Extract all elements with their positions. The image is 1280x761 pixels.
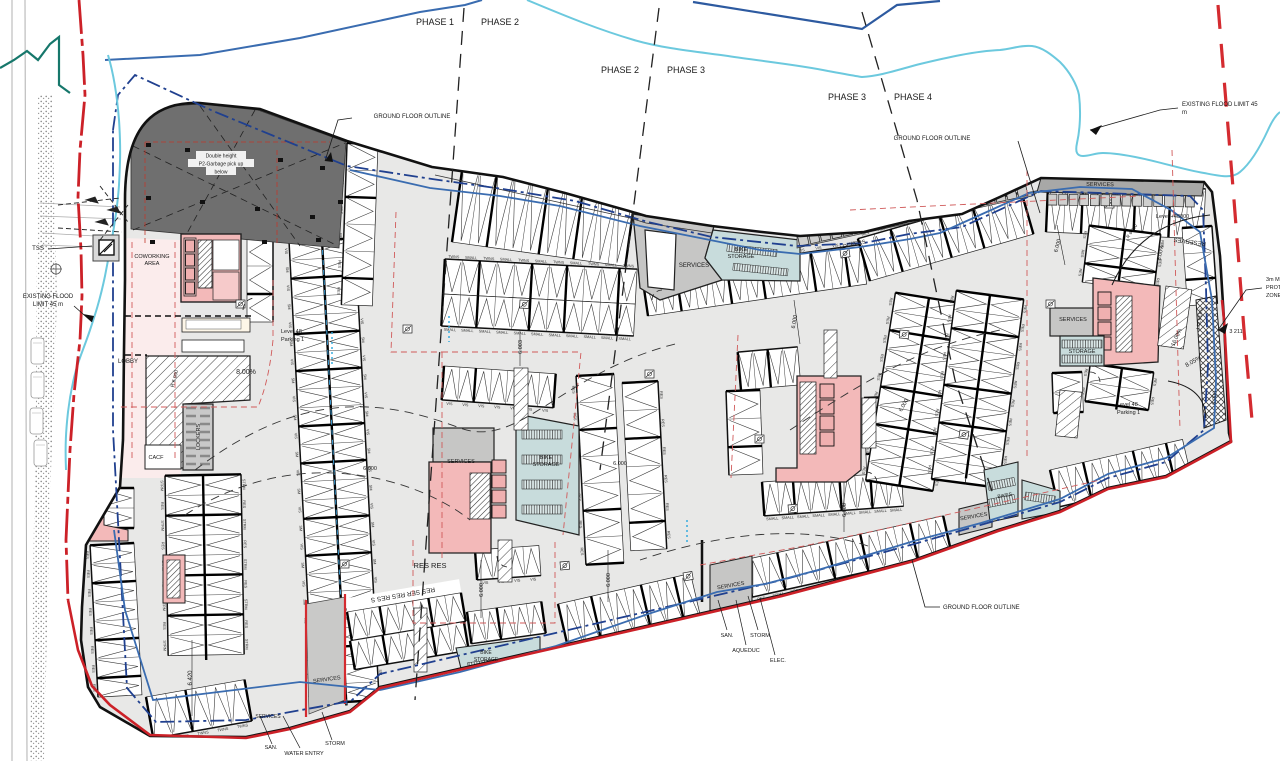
svg-text:SERVICES: SERVICES (1059, 317, 1087, 323)
svg-text:RES: RES (91, 665, 95, 673)
svg-text:SM: SM (372, 559, 376, 565)
svg-text:LIMIT 45 m: LIMIT 45 m (33, 302, 63, 308)
svg-text:SM: SM (285, 267, 289, 273)
svg-text:ZONE: ZONE (1266, 293, 1280, 299)
svg-text:STORM: STORM (325, 741, 345, 747)
svg-text:VIS: VIS (301, 580, 305, 587)
svg-text:COWORKING: COWORKING (134, 254, 169, 260)
svg-text:RES: RES (663, 475, 667, 483)
svg-text:VIS: VIS (530, 577, 537, 581)
svg-text:RES: RES (660, 419, 664, 427)
svg-text:SM: SM (365, 411, 369, 417)
svg-text:SM: SM (361, 337, 365, 343)
svg-text:VIS: VIS (494, 405, 501, 409)
svg-text:VIS: VIS (462, 403, 469, 407)
svg-text:GROUND FLOOR OUTLINE: GROUND FLOOR OUTLINE (943, 605, 1020, 611)
svg-text:Level 48: Level 48 (281, 329, 302, 335)
svg-text:STRM: STRM (244, 639, 248, 650)
svg-text:BIKE: BIKE (735, 247, 748, 253)
svg-text:SM: SM (370, 522, 374, 528)
svg-text:VIS: VIS (290, 359, 294, 366)
svg-text:VIS: VIS (362, 355, 366, 362)
svg-text:SM: SM (287, 304, 291, 310)
svg-text:6.000: 6.000 (363, 466, 377, 472)
svg-text:BIKE: BIKE (540, 455, 553, 461)
svg-text:P2-Garbage pick up: P2-Garbage pick up (199, 162, 244, 168)
svg-text:STRM: STRM (160, 480, 164, 491)
svg-text:LOBBY: LOBBY (118, 359, 138, 365)
svg-text:RES: RES (243, 540, 247, 548)
svg-text:VIS: VIS (297, 507, 301, 514)
svg-text:6.000: 6.000 (479, 583, 485, 597)
svg-text:6.000: 6.000 (1211, 391, 1218, 405)
svg-text:TWNS: TWNS (448, 255, 460, 260)
svg-text:RES: RES (162, 622, 166, 630)
svg-text:SMALL: SMALL (601, 336, 614, 341)
svg-text:SAN.: SAN. (721, 633, 734, 639)
svg-text:6.000: 6.000 (613, 461, 627, 467)
svg-text:VIS: VIS (360, 318, 364, 325)
svg-text:RES: RES (87, 589, 91, 597)
svg-text:STRM: STRM (244, 599, 248, 610)
svg-text:STORAGE: STORAGE (533, 462, 560, 468)
svg-text:WATER ENTRY: WATER ENTRY (284, 751, 324, 757)
svg-text:SM: SM (293, 415, 297, 421)
svg-text:SMALL: SMALL (570, 261, 583, 266)
svg-text:VIS: VIS (446, 402, 453, 406)
svg-text:VIS: VIS (478, 404, 485, 408)
svg-text:SMALL: SMALL (605, 263, 618, 268)
svg-text:SMALL: SMALL (496, 330, 509, 335)
svg-text:VIS: VIS (294, 433, 298, 440)
svg-text:TWNS: TWNS (518, 258, 530, 263)
svg-text:STRM: STRM (162, 640, 166, 651)
svg-text:RES: RES (89, 627, 93, 635)
svg-text:below: below (214, 170, 227, 176)
svg-text:VIS: VIS (288, 322, 292, 329)
svg-text:SMALL: SMALL (500, 257, 513, 262)
svg-text:PROT: PROT (1266, 285, 1280, 291)
svg-text:RES: RES (86, 570, 90, 578)
svg-text:SERVICES: SERVICES (255, 714, 281, 720)
svg-text:SMALL: SMALL (548, 333, 561, 338)
svg-text:VIS: VIS (292, 396, 296, 403)
svg-text:SMALL: SMALL (566, 334, 579, 339)
svg-text:LOCKERS: LOCKERS (196, 424, 202, 451)
svg-text:TWNS: TWNS (553, 260, 565, 265)
svg-text:RES: RES (665, 503, 669, 511)
svg-text:PHASE 1: PHASE 1 (416, 17, 454, 27)
svg-text:VIS: VIS (373, 577, 377, 584)
svg-text:STRM: STRM (243, 559, 247, 570)
svg-text:SMALL: SMALL (465, 256, 478, 261)
svg-text:TWNS: TWNS (483, 257, 495, 262)
svg-text:SM: SM (300, 562, 304, 568)
svg-text:SMALL: SMALL (479, 329, 492, 334)
svg-text:3m M: 3m M (1266, 277, 1280, 283)
svg-text:SMALL: SMALL (618, 337, 631, 342)
svg-text:SMALL: SMALL (531, 332, 544, 337)
svg-text:SMALL: SMALL (583, 335, 596, 340)
svg-text:TWNS: TWNS (588, 262, 600, 267)
svg-text:STORAGE: STORAGE (728, 254, 755, 260)
svg-text:6.000: 6.000 (842, 503, 848, 517)
svg-text:RES: RES (580, 547, 584, 555)
svg-text:RES: RES (160, 502, 164, 510)
svg-text:VIS: VIS (369, 503, 373, 510)
svg-text:m: m (1182, 110, 1187, 116)
svg-text:VIS: VIS (364, 392, 368, 399)
svg-text:Level +48000: Level +48000 (1156, 214, 1189, 220)
svg-text:VIS: VIS (514, 578, 521, 582)
svg-text:PHASE 2: PHASE 2 (481, 17, 519, 27)
svg-text:VIS: VIS (295, 470, 299, 477)
svg-text:RES: RES (666, 531, 670, 539)
svg-text:EXISTING FLOOD LIMIT 45: EXISTING FLOOD LIMIT 45 (1182, 102, 1258, 108)
svg-text:STORAGE: STORAGE (1069, 349, 1096, 355)
svg-text:PHASE 3: PHASE 3 (828, 92, 866, 102)
svg-text:3 211: 3 211 (1229, 329, 1242, 335)
svg-text:RES: RES (336, 287, 340, 295)
svg-text:RES: RES (337, 260, 341, 268)
svg-text:RES: RES (659, 391, 663, 399)
svg-text:AQUEDUC: AQUEDUC (732, 648, 760, 654)
svg-text:VIS: VIS (365, 429, 369, 436)
svg-text:RES: RES (90, 646, 94, 654)
svg-text:BIKE: BIKE (480, 650, 492, 656)
svg-text:6.000: 6.000 (606, 573, 612, 587)
svg-text:STRM: STRM (160, 520, 164, 531)
svg-text:SERVICES: SERVICES (1086, 182, 1114, 188)
svg-text:RES: RES (244, 620, 248, 628)
svg-text:ELEC.: ELEC. (770, 658, 786, 664)
svg-text:SMALL: SMALL (444, 328, 457, 333)
svg-text:SM: SM (296, 488, 300, 494)
svg-text:SM: SM (363, 374, 367, 380)
svg-text:6.003: 6.003 (518, 340, 524, 354)
svg-text:VIS: VIS (299, 544, 303, 551)
svg-text:RES: RES (662, 447, 666, 455)
svg-text:RES: RES (242, 500, 246, 508)
svg-text:SMALL: SMALL (535, 259, 548, 264)
svg-text:RES RES: RES RES (414, 561, 447, 570)
svg-text:Parking 1: Parking 1 (1117, 410, 1140, 416)
svg-text:SM: SM (295, 451, 299, 457)
svg-text:VIS: VIS (284, 248, 288, 255)
svg-text:GROUND FLOOR OUTLINE: GROUND FLOOR OUTLINE (374, 114, 451, 120)
svg-text:STRM: STRM (242, 519, 246, 530)
svg-text:GROUND FLOOR OUTLINE: GROUND FLOOR OUTLINE (894, 136, 971, 142)
svg-text:STRM: STRM (242, 479, 246, 490)
svg-text:AREA: AREA (145, 261, 160, 267)
svg-text:VIS: VIS (286, 285, 290, 292)
svg-text:SERVICES: SERVICES (447, 459, 475, 465)
svg-text:Parking 1: Parking 1 (281, 337, 304, 343)
svg-text:STORAGE: STORAGE (474, 657, 499, 663)
svg-text:SM: SM (291, 378, 295, 384)
svg-text:TSS: TSS (32, 246, 44, 252)
svg-text:CACF: CACF (149, 455, 165, 461)
svg-text:8.00%: 8.00% (236, 369, 256, 376)
svg-text:RES: RES (88, 608, 92, 616)
svg-text:SAN.: SAN. (265, 745, 278, 751)
svg-text:RES: RES (161, 542, 165, 550)
svg-text:SMALL: SMALL (461, 328, 474, 333)
svg-text:EXISTING FLOOD: EXISTING FLOOD (23, 294, 74, 300)
svg-text:TWNS: TWNS (623, 264, 635, 269)
svg-text:VIS: VIS (371, 540, 375, 547)
svg-text:RES: RES (243, 580, 247, 588)
svg-text:VIS: VIS (542, 408, 549, 412)
svg-text:PHASE 4: PHASE 4 (894, 92, 932, 102)
svg-text:SERVICES: SERVICES (679, 263, 709, 269)
svg-text:STORM: STORM (750, 633, 770, 639)
svg-text:SM: SM (298, 525, 302, 531)
svg-text:6 420: 6 420 (188, 670, 194, 686)
svg-text:Level 48: Level 48 (1117, 402, 1138, 408)
svg-text:PHASE 2: PHASE 2 (601, 65, 639, 75)
svg-text:SM: SM (366, 448, 370, 454)
svg-text:Double height: Double height (206, 154, 237, 160)
svg-text:PHASE 3: PHASE 3 (667, 65, 705, 75)
svg-text:SM: SM (368, 485, 372, 491)
